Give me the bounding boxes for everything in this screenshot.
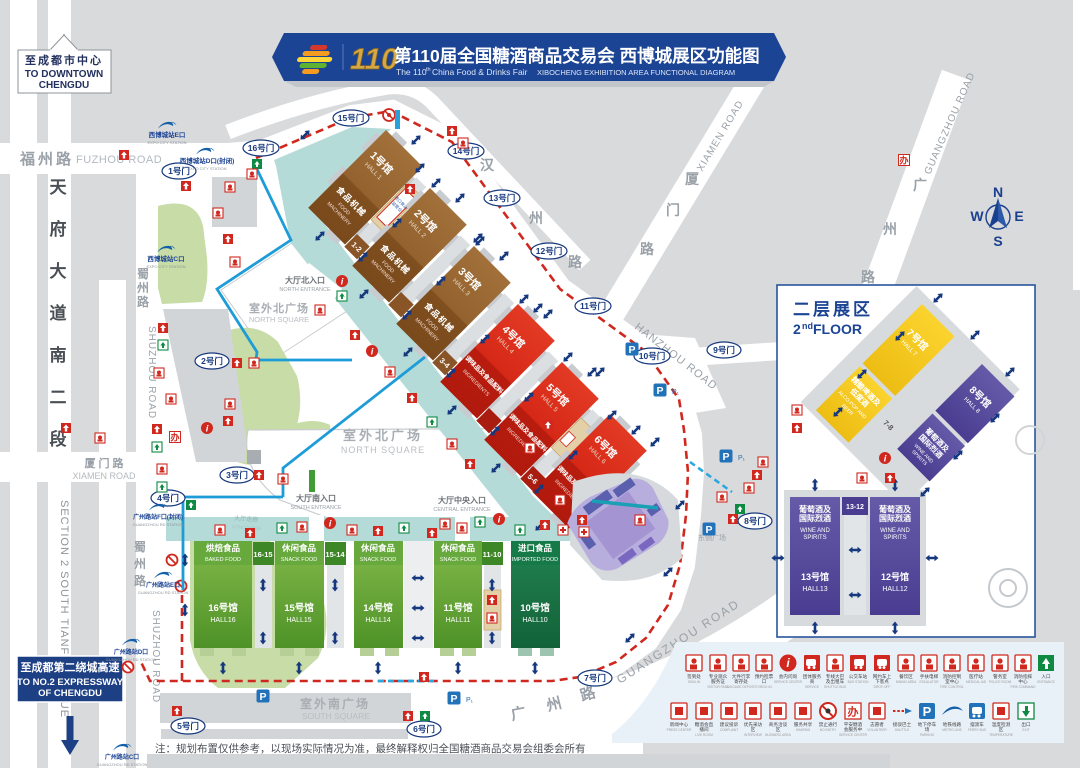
svg-text:P₁: P₁: [672, 389, 680, 396]
svg-text:3号门: 3号门: [226, 470, 248, 480]
svg-text:INTERVIEW: INTERVIEW: [744, 733, 762, 737]
svg-text:15-14: 15-14: [325, 550, 345, 559]
svg-text:DROP-OFF: DROP-OFF: [874, 685, 891, 689]
svg-text:9号门: 9号门: [713, 345, 735, 355]
svg-text:室外北广场: 室外北广场: [343, 428, 423, 443]
svg-text:GUANGZHOU RD STATION: GUANGZHOU RD STATION: [97, 762, 148, 767]
svg-text:7号门: 7号门: [584, 673, 606, 683]
svg-text:HALL10: HALL10: [522, 617, 547, 624]
svg-text:E: E: [1014, 208, 1023, 224]
svg-text:FERRY BUS: FERRY BUS: [968, 728, 986, 732]
svg-text:路: 路: [861, 269, 876, 285]
svg-text:禁止通行: 禁止通行: [819, 721, 838, 728]
svg-text:14号馆: 14号馆: [363, 602, 393, 614]
svg-text:休闲食品: 休闲食品: [440, 543, 476, 553]
svg-text:西博城站C口: 西博城站C口: [147, 254, 184, 263]
svg-text:进口食品: 进口食品: [518, 543, 553, 553]
svg-text:路: 路: [640, 241, 655, 257]
svg-text:METRO LINE: METRO LINE: [942, 728, 961, 732]
svg-text:BUSINESS AREA: BUSINESS AREA: [765, 733, 791, 737]
svg-text:The 110: The 110: [396, 67, 427, 77]
svg-text:州: 州: [133, 557, 146, 571]
svg-text:SPIRITS: SPIRITS: [883, 535, 906, 541]
svg-text:N: N: [993, 184, 1003, 200]
svg-text:大厅北入口: 大厅北入口: [285, 275, 325, 285]
svg-text:IMPORTED FOOD: IMPORTED FOOD: [512, 557, 558, 563]
svg-text:GUANGZHOU RD STATION: GUANGZHOU RD STATION: [138, 590, 189, 595]
svg-text:BUS STATION: BUS STATION: [848, 680, 869, 684]
svg-text:注：规划布置仅供参考，以现场实际情况为准，最终解释权归全国糖: 注：规划布置仅供参考，以现场实际情况为准，最终解释权归全国糖酒商品交易会组委会所…: [155, 742, 586, 755]
svg-text:中心: 中心: [1018, 678, 1028, 685]
svg-text:TEMPERATURE: TEMPERATURE: [989, 733, 1013, 737]
svg-text:EXIT: EXIT: [1022, 728, 1029, 732]
svg-text:汉: 汉: [480, 157, 495, 173]
svg-text:SERVICE: SERVICE: [805, 685, 819, 689]
svg-text:国际烈酒: 国际烈酒: [799, 513, 831, 523]
svg-text:S: S: [993, 233, 1002, 249]
svg-text:ESCALATOR: ESCALATOR: [919, 680, 939, 684]
svg-text:LUGGAGE DEPOSIT: LUGGAGE DEPOSIT: [726, 685, 757, 689]
svg-text:SNACK FOOD: SNACK FOOD: [281, 557, 317, 563]
svg-text:休闲食品: 休闲食品: [281, 543, 317, 553]
svg-text:商: 商: [810, 678, 815, 685]
svg-text:nd: nd: [802, 321, 813, 331]
svg-text:公交车站: 公交车站: [849, 673, 868, 680]
svg-text:警务室: 警务室: [993, 673, 1007, 680]
svg-text:11号馆: 11号馆: [443, 602, 473, 614]
svg-text:大: 大: [50, 261, 67, 281]
svg-text:大厅南入口: 大厅南入口: [296, 493, 336, 503]
svg-text:FIRE COMMAND: FIRE COMMAND: [1011, 685, 1037, 689]
svg-text:蜀: 蜀: [134, 540, 146, 554]
svg-text:11号门: 11号门: [580, 301, 606, 311]
svg-text:16-15: 16-15: [253, 550, 272, 559]
svg-text:广州路站C口: 广州路站C口: [105, 753, 139, 761]
svg-text:EXPO CITY STATION: EXPO CITY STATION: [147, 140, 186, 145]
svg-text:P₁: P₁: [466, 697, 474, 704]
svg-text:2: 2: [793, 321, 801, 337]
svg-text:TO DOWNTOWN: TO DOWNTOWN: [25, 69, 104, 80]
svg-text:SHARING: SHARING: [796, 728, 811, 732]
svg-text:室外南广场: 室外南广场: [300, 696, 370, 711]
svg-text:10号门: 10号门: [639, 351, 665, 361]
svg-text:播间: 播间: [699, 726, 709, 733]
svg-text:二: 二: [50, 388, 67, 407]
svg-text:西博城站D口(封闭): 西博城站D口(封闭): [180, 156, 235, 165]
svg-text:SNACK FOOD: SNACK FOOD: [360, 557, 396, 563]
svg-text:XIAMEN ROAD: XIAMEN ROAD: [72, 471, 136, 481]
svg-text:路: 路: [137, 294, 150, 309]
svg-text:PRESS CENTER: PRESS CENTER: [667, 728, 692, 732]
svg-text:州: 州: [882, 221, 897, 237]
svg-text:12号馆: 12号馆: [881, 571, 909, 582]
svg-text:休闲食品: 休闲食品: [360, 543, 396, 553]
svg-text:广州路站F口(封闭): 广州路站F口(封闭): [133, 513, 183, 521]
svg-text:国际烈酒: 国际烈酒: [879, 513, 911, 523]
svg-text:13号馆: 13号馆: [801, 571, 829, 582]
svg-text:室中心: 室中心: [945, 678, 959, 685]
svg-text:GUANGZHOU RD STATION: GUANGZHOU RD STATION: [106, 657, 157, 662]
svg-text:广州路站D口: 广州路站D口: [114, 648, 148, 656]
svg-text:至成都第二绕城高速: 至成都第二绕城高速: [21, 660, 120, 674]
svg-text:建议投诉: 建议投诉: [720, 721, 739, 728]
svg-text:HALL15: HALL15: [286, 617, 311, 624]
svg-text:签到处: 签到处: [687, 673, 701, 680]
svg-text:及出租车: 及出租车: [826, 678, 845, 685]
svg-text:厦 门 路: 厦 门 路: [84, 456, 124, 470]
svg-text:下客点: 下客点: [875, 678, 889, 685]
svg-text:新闻中心: 新闻中心: [670, 721, 689, 728]
svg-text:EXPO CITY STATION: EXPO CITY STATION: [187, 166, 226, 171]
svg-text:China Food & Drinks Fair: China Food & Drinks Fair: [432, 67, 528, 77]
svg-text:WINE AND: WINE AND: [800, 528, 830, 534]
svg-text:ENTRANCE: ENTRANCE: [1037, 680, 1055, 684]
svg-text:CENTRAL ENTRANCE: CENTRAL ENTRANCE: [433, 507, 491, 513]
svg-text:HALL13: HALL13: [802, 586, 827, 593]
svg-text:SIGN-IN: SIGN-IN: [688, 680, 701, 684]
svg-text:FIRE CONTROL: FIRE CONTROL: [940, 685, 964, 689]
svg-text:th: th: [426, 67, 431, 73]
svg-text:VOLUNTEER: VOLUNTEER: [867, 728, 887, 732]
svg-text:办: 办: [848, 705, 859, 719]
svg-text:8号门: 8号门: [744, 516, 766, 526]
svg-text:15号馆: 15号馆: [284, 602, 314, 614]
svg-text:11-10: 11-10: [483, 550, 502, 559]
svg-text:CHENGDU: CHENGDU: [39, 80, 90, 91]
svg-text:HALL12: HALL12: [882, 586, 907, 593]
svg-text:13-12: 13-12: [846, 504, 864, 511]
svg-text:12号门: 12号门: [536, 246, 562, 256]
svg-text:寄存处: 寄存处: [734, 678, 748, 685]
svg-text:地铁线路: 地铁线路: [943, 721, 962, 728]
svg-text:医疗站: 医疗站: [969, 673, 983, 680]
svg-text:POLICE ROOM: POLICE ROOM: [989, 680, 1012, 684]
svg-text:区: 区: [999, 727, 1004, 732]
svg-text:天: 天: [50, 178, 68, 197]
svg-text:10号馆: 10号馆: [520, 602, 550, 614]
svg-text:室外北广场: 室外北广场: [249, 301, 309, 315]
svg-text:至成都市中心: 至成都市中心: [25, 53, 103, 67]
svg-text:摆渡车: 摆渡车: [970, 721, 984, 728]
svg-text:16号馆: 16号馆: [208, 602, 238, 614]
svg-text:SOUTH SQUARE: SOUTH SQUARE: [302, 711, 370, 721]
svg-text:NORTH SQUARE: NORTH SQUARE: [249, 315, 309, 324]
svg-text:烘焙食品: 烘焙食品: [206, 543, 241, 553]
svg-text:BAKED FOOD: BAKED FOOD: [205, 557, 241, 563]
svg-text:路: 路: [568, 254, 583, 270]
svg-text:16号门: 16号门: [248, 143, 274, 153]
svg-text:WINE AND: WINE AND: [880, 528, 910, 534]
svg-text:NORTH ENTRANCE: NORTH ENTRANCE: [279, 287, 331, 293]
svg-text:葡萄酒及: 葡萄酒及: [878, 504, 912, 514]
svg-text:葡萄酒及: 葡萄酒及: [798, 504, 832, 514]
svg-text:厦: 厦: [685, 171, 700, 187]
svg-text:SERVICE CENTER: SERVICE CENTER: [839, 733, 868, 737]
svg-text:4号门: 4号门: [157, 493, 179, 503]
svg-text:门: 门: [666, 202, 680, 218]
svg-text:GUANGZHOU RD STATION: GUANGZHOU RD STATION: [133, 522, 184, 527]
svg-text:府: 府: [50, 219, 67, 239]
svg-text:MEDICAL AID: MEDICAL AID: [966, 680, 987, 684]
svg-text:福州路: 福州路: [19, 150, 74, 168]
svg-text:服务共享: 服务共享: [794, 721, 813, 728]
svg-text:HALL11: HALL11: [446, 617, 471, 624]
svg-text:HALL16: HALL16: [210, 617, 235, 624]
svg-text:XIBOCHENG EXHIBITION AREA FUNC: XIBOCHENG EXHIBITION AREA FUNCTIONAL DIA…: [537, 68, 735, 77]
svg-text:广: 广: [913, 177, 927, 193]
svg-text:餐饮区: 餐饮区: [899, 673, 913, 680]
svg-text:6号门: 6号门: [413, 724, 435, 734]
svg-text:SHUTTLE: SHUTTLE: [895, 728, 910, 732]
svg-text:蜀: 蜀: [137, 267, 149, 281]
svg-text:W: W: [970, 208, 984, 224]
svg-text:大厅中央入口: 大厅中央入口: [438, 495, 486, 505]
svg-text:EXPO CITY STATION: EXPO CITY STATION: [146, 264, 185, 269]
svg-text:场: 场: [925, 726, 930, 733]
svg-text:州: 州: [528, 210, 543, 226]
svg-text:P: P: [923, 704, 932, 719]
svg-text:13号门: 13号门: [489, 193, 515, 203]
svg-text:CHECK-IN: CHECK-IN: [756, 685, 772, 689]
svg-text:TO NO.2 EXPRESSWAY: TO NO.2 EXPRESSWAY: [17, 677, 124, 688]
svg-text:志愿者: 志愿者: [870, 721, 884, 728]
svg-text:手扶电梯: 手扶电梯: [920, 673, 939, 680]
svg-text:PARKING: PARKING: [920, 733, 935, 737]
svg-text:DINING AREA: DINING AREA: [896, 680, 917, 684]
svg-text:OF CHENGDU: OF CHENGDU: [38, 688, 102, 699]
svg-text:接驳巴士: 接驳巴士: [893, 721, 912, 728]
svg-text:SPIRITS: SPIRITS: [803, 535, 826, 541]
svg-text:道: 道: [50, 303, 67, 323]
svg-text:服务证: 服务证: [711, 678, 725, 685]
svg-text:LIVE ROOM: LIVE ROOM: [695, 733, 713, 737]
svg-text:州: 州: [136, 281, 149, 295]
svg-text:第110届全国糖酒商品交易会 西博城展区功能图: 第110届全国糖酒商品交易会 西博城展区功能图: [394, 46, 760, 66]
svg-text:SOUTH ENTRANCE: SOUTH ENTRANCE: [290, 505, 341, 511]
svg-text:NORTH SQUARE: NORTH SQUARE: [341, 445, 425, 455]
svg-text:NO ENTRY: NO ENTRY: [820, 728, 837, 732]
svg-text:HALL14: HALL14: [365, 617, 390, 624]
svg-text:区: 区: [776, 727, 781, 732]
svg-text:广州路站E口: 广州路站E口: [146, 581, 180, 589]
svg-text:SERVICE CENTER: SERVICE CENTER: [774, 680, 803, 684]
svg-text:COMPLAINT: COMPLAINT: [720, 728, 739, 732]
svg-text:二层展区: 二层展区: [793, 300, 873, 319]
svg-text:南: 南: [50, 345, 67, 365]
svg-text:出口: 出口: [1021, 721, 1031, 728]
svg-text:P₁: P₁: [738, 455, 746, 462]
svg-text:SNACK FOOD: SNACK FOOD: [440, 557, 476, 563]
svg-text:2号门: 2号门: [201, 356, 223, 366]
svg-text:西博城站E口: 西博城站E口: [149, 130, 186, 139]
svg-text:会服务中: 会服务中: [844, 726, 863, 733]
svg-text:FLOOR: FLOOR: [813, 321, 862, 337]
svg-text:会内问询: 会内问询: [779, 673, 798, 680]
svg-text:SHUTTLE BUS: SHUTTLE BUS: [824, 685, 846, 689]
svg-text:区: 区: [751, 727, 756, 732]
svg-text:15号门: 15号门: [338, 113, 364, 123]
svg-text:110: 110: [350, 43, 398, 76]
svg-text:5号门: 5号门: [177, 721, 199, 731]
